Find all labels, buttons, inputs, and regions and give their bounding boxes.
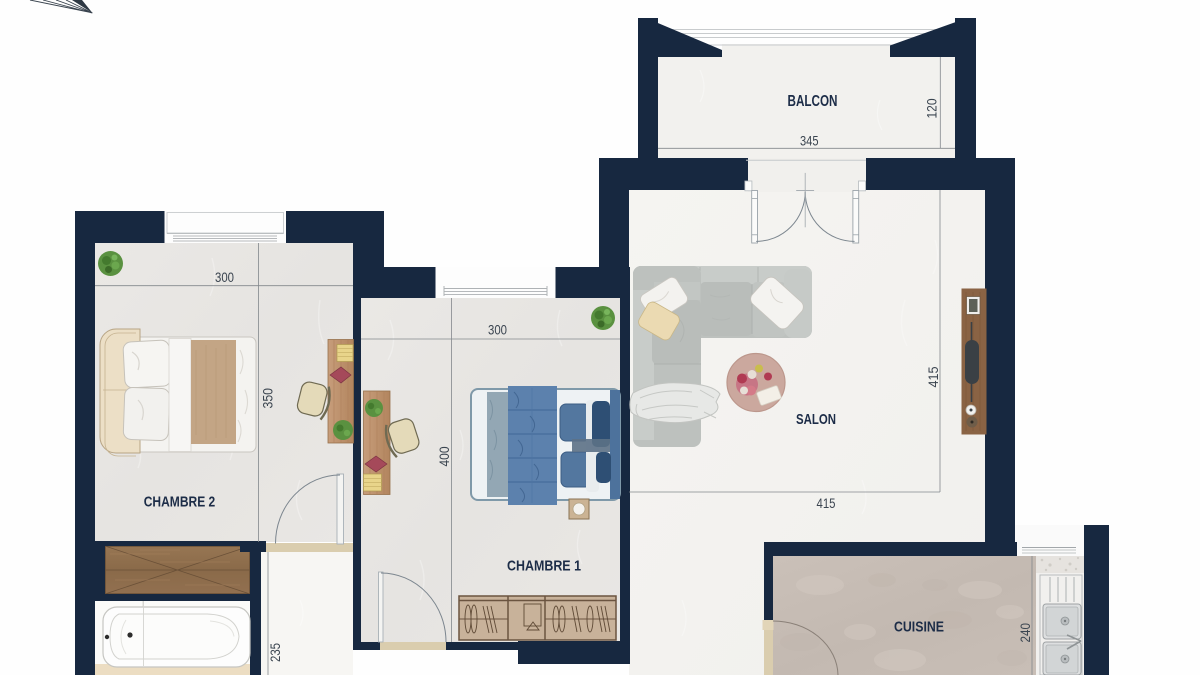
svg-text:CHAMBRE 1: CHAMBRE 1 [507,558,581,575]
svg-text:CHAMBRE 2: CHAMBRE 2 [144,494,216,511]
svg-text:400: 400 [437,447,452,467]
svg-text:415: 415 [926,367,941,388]
svg-text:350: 350 [261,388,276,409]
svg-text:300: 300 [215,270,234,285]
svg-text:240: 240 [1018,623,1033,643]
svg-text:SALON: SALON [796,411,836,428]
svg-text:235: 235 [268,643,283,662]
svg-text:415: 415 [817,496,836,511]
svg-text:300: 300 [488,323,507,338]
svg-text:BALCON: BALCON [788,93,838,110]
svg-text:120: 120 [925,99,940,119]
svg-text:345: 345 [800,133,819,148]
svg-text:CUISINE: CUISINE [894,619,944,636]
